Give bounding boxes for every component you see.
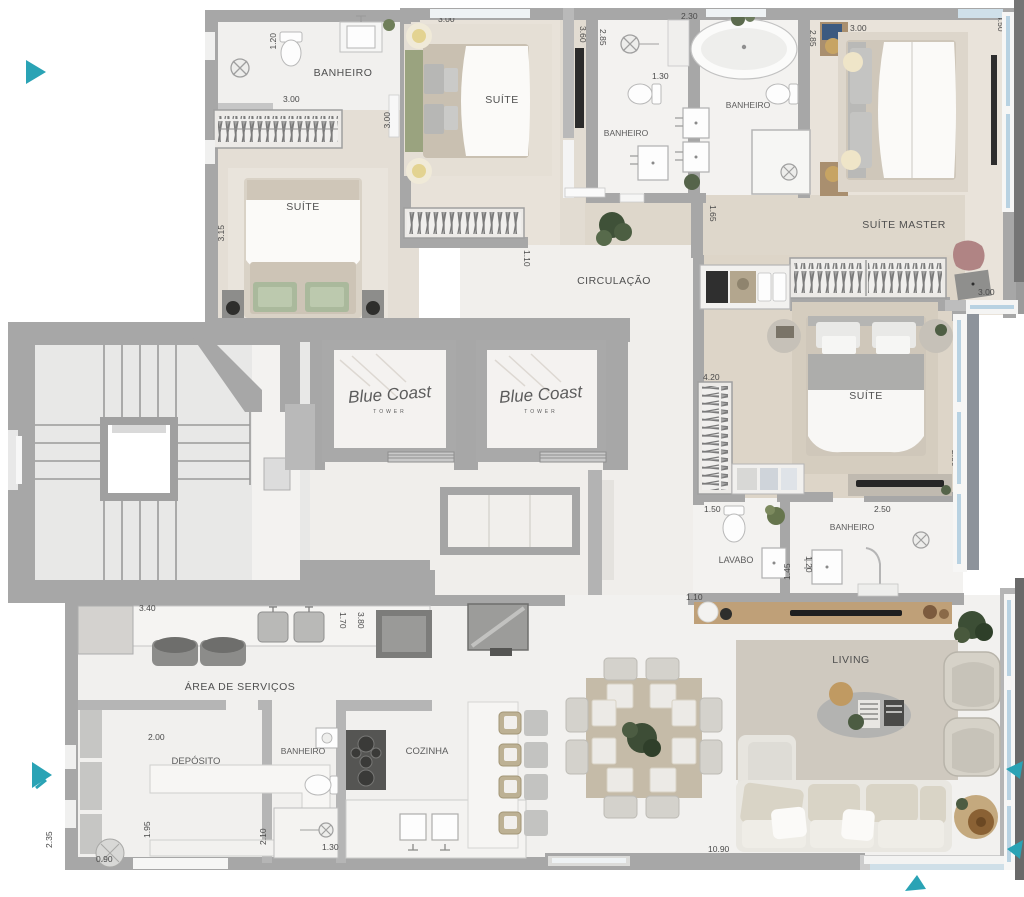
svg-text:1.10: 1.10 xyxy=(686,592,703,602)
svg-text:10.90: 10.90 xyxy=(708,844,730,854)
svg-text:CIRCULAÇÃO: CIRCULAÇÃO xyxy=(577,274,651,287)
svg-text:3.00: 3.00 xyxy=(978,287,995,297)
svg-text:1.30: 1.30 xyxy=(322,842,339,852)
svg-text:SUÍTE: SUÍTE xyxy=(485,93,518,106)
svg-text:3.15: 3.15 xyxy=(216,225,226,242)
svg-text:1.95: 1.95 xyxy=(142,821,152,838)
svg-text:3.80: 3.80 xyxy=(356,612,366,629)
svg-text:BANHEIRO: BANHEIRO xyxy=(830,522,875,532)
svg-text:SUÍTE MASTER: SUÍTE MASTER xyxy=(862,218,946,231)
svg-text:BANHEIRO: BANHEIRO xyxy=(314,67,373,79)
svg-text:DEPÓSITO: DEPÓSITO xyxy=(172,756,221,767)
svg-text:ÁREA DE SERVIÇOS: ÁREA DE SERVIÇOS xyxy=(185,680,296,693)
svg-text:2.10: 2.10 xyxy=(258,828,268,845)
svg-text:TOWER: TOWER xyxy=(524,409,558,415)
svg-text:1.65: 1.65 xyxy=(708,205,718,222)
svg-text:2.85: 2.85 xyxy=(808,30,818,47)
svg-text:1.10: 1.10 xyxy=(522,250,532,267)
svg-text:3.60: 3.60 xyxy=(578,26,588,43)
svg-text:1.70: 1.70 xyxy=(338,612,348,629)
svg-text:1.45: 1.45 xyxy=(782,563,792,580)
svg-text:BANHEIRO: BANHEIRO xyxy=(281,746,326,756)
svg-text:TOWER: TOWER xyxy=(373,409,407,415)
svg-text:1.20: 1.20 xyxy=(804,556,814,573)
svg-text:2.30: 2.30 xyxy=(681,11,698,21)
svg-text:SUÍTE: SUÍTE xyxy=(286,200,319,213)
svg-text:SUÍTE: SUÍTE xyxy=(849,389,882,402)
svg-text:LAVABO: LAVABO xyxy=(719,555,754,565)
svg-text:1.30: 1.30 xyxy=(652,71,669,81)
svg-text:1.20: 1.20 xyxy=(268,33,278,50)
svg-text:3.00: 3.00 xyxy=(382,112,392,129)
svg-text:0.90: 0.90 xyxy=(96,854,113,864)
svg-text:2.35: 2.35 xyxy=(44,831,54,848)
svg-text:LIVING: LIVING xyxy=(832,654,869,666)
svg-text:2.85: 2.85 xyxy=(598,29,608,46)
svg-text:BANHEIRO: BANHEIRO xyxy=(726,100,771,110)
svg-text:4.20: 4.20 xyxy=(703,372,720,382)
svg-text:2.50: 2.50 xyxy=(874,504,891,514)
svg-text:BANHEIRO: BANHEIRO xyxy=(604,128,649,138)
svg-text:1.50: 1.50 xyxy=(704,504,721,514)
svg-text:2.00: 2.00 xyxy=(148,732,165,742)
svg-text:3.00: 3.00 xyxy=(283,94,300,104)
svg-text:3.40: 3.40 xyxy=(139,603,156,613)
svg-text:3.00: 3.00 xyxy=(850,23,867,33)
svg-text:COZINHA: COZINHA xyxy=(406,746,449,757)
